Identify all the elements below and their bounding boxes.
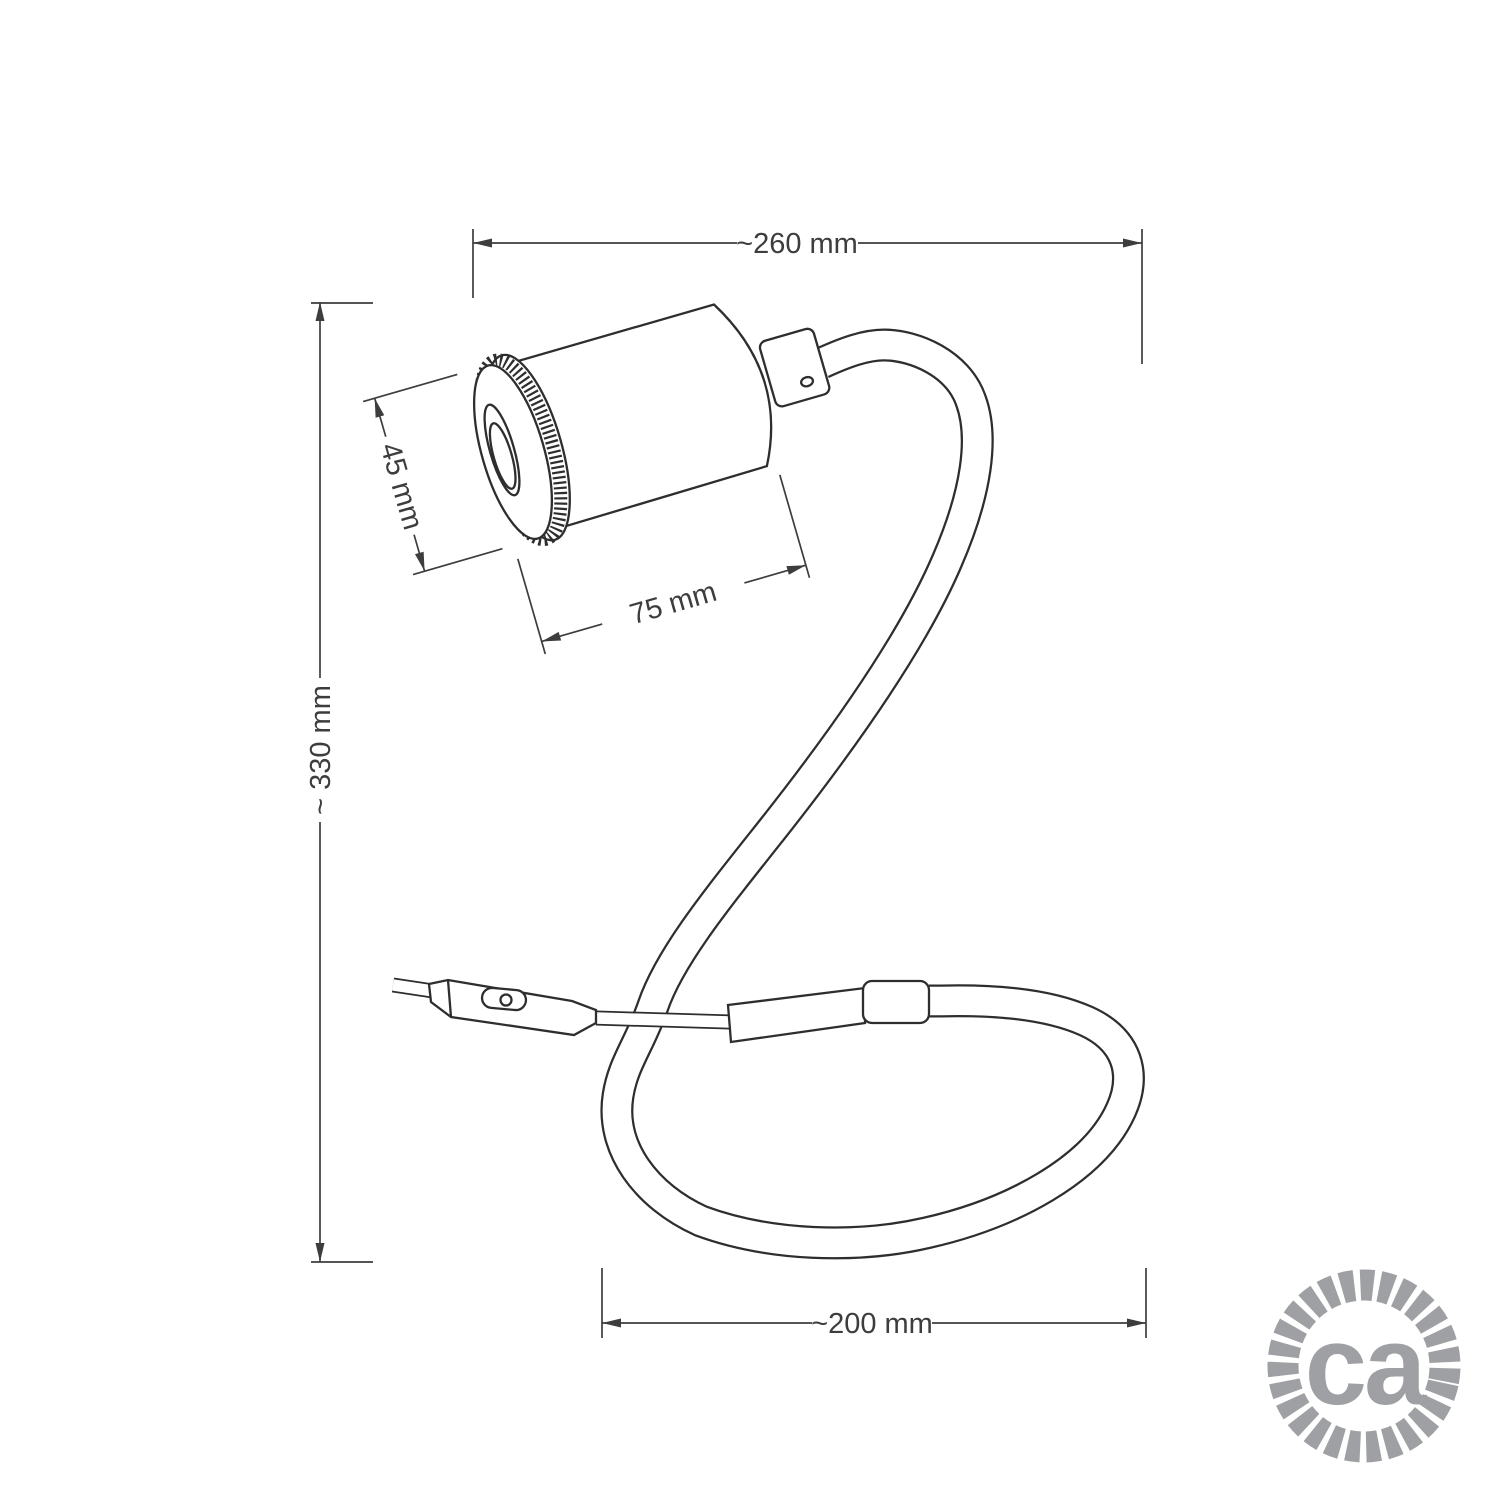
technical-drawing: ~260 mm ~ 330 mm ~200 mm xyxy=(0,0,1500,1500)
arrowhead-left-icon xyxy=(473,239,492,248)
spotlight-head: 45 mm 75 mm xyxy=(359,270,880,686)
dimension-label: ~200 mm xyxy=(811,1308,933,1340)
switch-rocker xyxy=(481,987,527,1011)
dimension-label: 75 mm xyxy=(626,576,720,631)
cord-stub-fill xyxy=(393,985,433,991)
logo-text: ca xyxy=(1305,1303,1427,1428)
brand-logo: ca xyxy=(1268,1270,1460,1462)
dimension-label: 45 mm xyxy=(373,439,428,533)
arrowhead-left-icon xyxy=(602,1319,621,1328)
extension-line xyxy=(363,374,457,401)
dimension-label: ~260 mm xyxy=(736,228,858,260)
arrowhead-up-icon xyxy=(370,397,384,418)
arrowhead-down-icon xyxy=(415,552,429,573)
arrowhead-left-icon xyxy=(540,632,561,646)
arrowhead-right-icon xyxy=(786,561,807,575)
extension-line xyxy=(413,549,502,575)
extension-line xyxy=(780,475,810,578)
arrowhead-up-icon xyxy=(316,302,325,321)
arrowhead-down-icon xyxy=(316,1243,325,1262)
arrowhead-right-icon xyxy=(1127,1319,1146,1328)
product-dimension-diagram: ~260 mm ~ 330 mm ~200 mm xyxy=(0,0,1500,1500)
tube-collar xyxy=(863,981,929,1023)
dimension-base-width: ~200 mm xyxy=(602,1268,1146,1340)
cord-middle-fill xyxy=(596,1018,730,1022)
dimension-overall-height: ~ 330 mm xyxy=(305,302,373,1262)
cord-sleeve xyxy=(728,988,865,1042)
inline-switch xyxy=(429,980,596,1035)
extension-line xyxy=(518,559,545,654)
dimension-label: ~ 330 mm xyxy=(305,685,337,815)
arrowhead-right-icon xyxy=(1123,239,1142,248)
